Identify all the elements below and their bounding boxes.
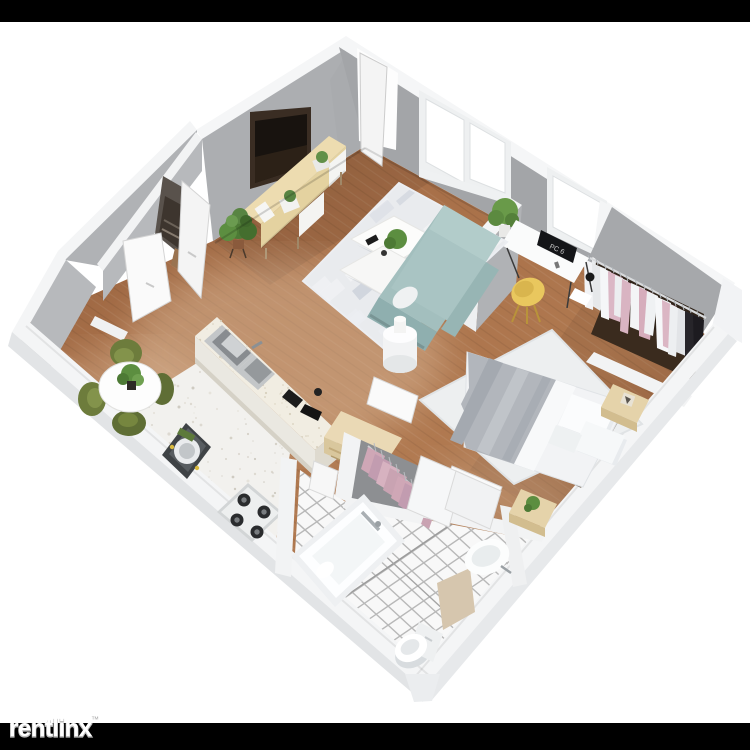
svg-text:rentlinx: rentlinx (9, 715, 93, 742)
svg-text:™: ™ (91, 715, 99, 724)
